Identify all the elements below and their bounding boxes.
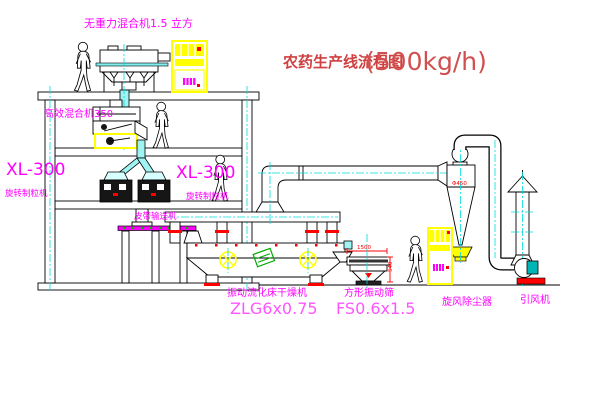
person-figure-floor2 bbox=[153, 102, 168, 148]
fluid-bed-dryer bbox=[187, 241, 352, 286]
cyclone-inlet-reducer bbox=[438, 162, 447, 186]
label-screen-name: 方形振动筛 bbox=[344, 286, 394, 299]
page-title-capacity: (500kg/h) bbox=[365, 47, 487, 76]
label-screen-model: FS0.6x1.5 bbox=[336, 299, 415, 318]
label-high-efficiency-mixer: 高效混合机350 bbox=[44, 107, 113, 120]
pesticide-line-flow-diagram: 无重力混合机1.5 立方 农药生产线流程图 (500kg/h) 高效混合机350… bbox=[0, 0, 600, 403]
label-granulator-left: 旋转制粒机 bbox=[5, 188, 48, 199]
vibrating-screen bbox=[347, 234, 393, 290]
control-cabinet-top bbox=[172, 41, 207, 92]
diagram-svg: 无重力混合机1.5 立方 农药生产线流程图 (500kg/h) 高效混合机350… bbox=[0, 0, 600, 403]
dim-cyclone-diameter: Φ450 bbox=[452, 181, 467, 187]
fan-base bbox=[517, 278, 545, 284]
building-ground-slab bbox=[38, 283, 259, 290]
label-fan: 引风机 bbox=[520, 293, 550, 306]
label-dryer-model: ZLG6x0.75 bbox=[230, 299, 318, 318]
cabinet-indicator-light bbox=[197, 47, 201, 51]
gravity-free-mixer bbox=[96, 46, 170, 92]
fan-motor bbox=[527, 261, 538, 274]
dim-screen-width: 1500 bbox=[357, 245, 371, 251]
control-cabinet-right bbox=[428, 228, 452, 284]
label-gravity-free-mixer: 无重力混合机1.5 立方 bbox=[84, 16, 193, 30]
discharge-valve bbox=[344, 241, 352, 249]
roof-slab bbox=[38, 92, 259, 100]
floor2-slab bbox=[55, 148, 242, 156]
label-granulator-right: 旋转制粒机 bbox=[186, 191, 229, 202]
induced-draft-fan bbox=[515, 259, 546, 285]
dim-screen-height: 540 bbox=[388, 261, 394, 272]
belt-conveyor bbox=[118, 226, 196, 283]
label-xl300-right: XL-300 bbox=[176, 163, 235, 183]
label-belt-conveyor: 皮带输送机 bbox=[134, 211, 177, 222]
person-figure-roof bbox=[74, 42, 90, 91]
cabinet-indicator-light bbox=[447, 231, 450, 234]
label-dryer-name: 振动流化床干燥机 bbox=[227, 286, 307, 299]
granulator-left bbox=[100, 172, 132, 202]
person-figure-ground bbox=[407, 236, 422, 282]
granulator-right bbox=[138, 172, 170, 202]
label-cyclone: 旋风除尘器 bbox=[442, 295, 492, 308]
label-xl300-left: XL-300 bbox=[6, 160, 65, 180]
